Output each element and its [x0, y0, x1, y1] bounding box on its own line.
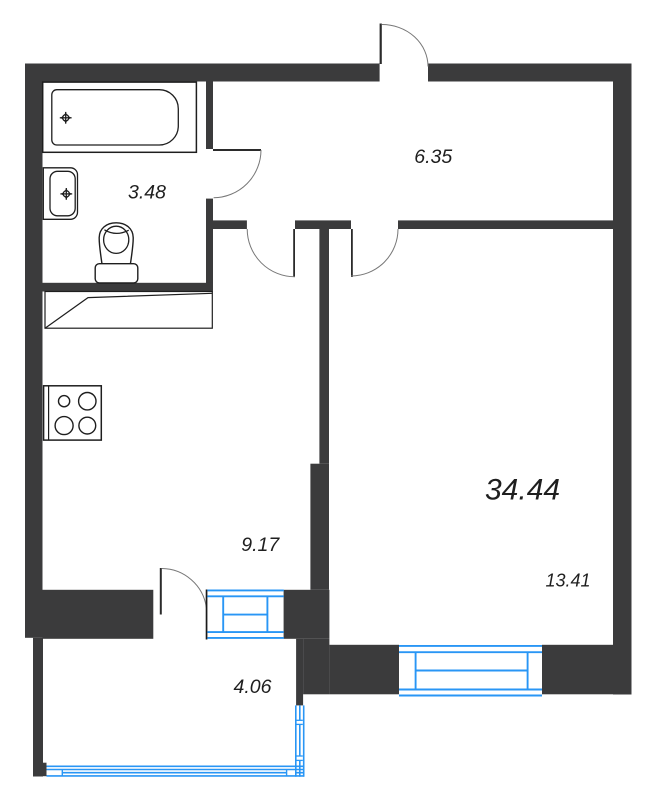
- svg-text:13.41: 13.41: [546, 571, 591, 591]
- svg-text:9.17: 9.17: [241, 534, 280, 556]
- svg-text:34.44: 34.44: [485, 474, 560, 507]
- svg-text:3.48: 3.48: [128, 182, 166, 204]
- svg-text:6.35: 6.35: [414, 146, 452, 168]
- svg-text:4.06: 4.06: [234, 676, 272, 698]
